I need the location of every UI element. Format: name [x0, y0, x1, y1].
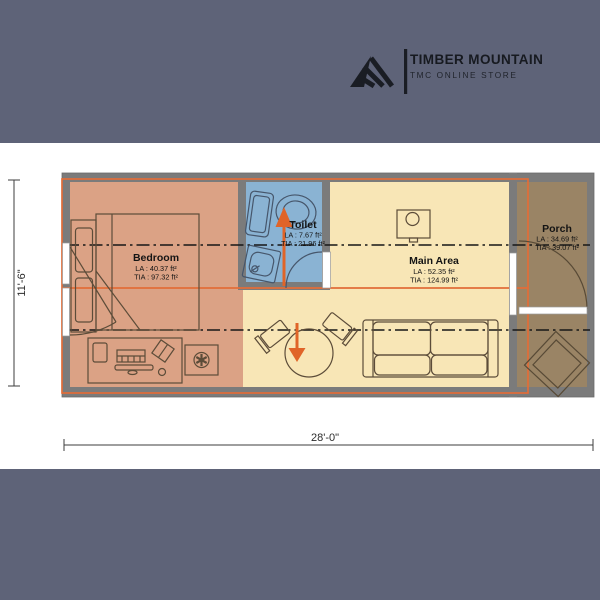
main-area-label: Main Area: [409, 255, 459, 267]
porch-label: Porch: [542, 223, 572, 235]
window-left-upper: [63, 243, 70, 284]
floorplan: Bedroom LA : 40.37 ft² TIA : 97.32 ft² T…: [0, 143, 600, 469]
brand-subtitle: TMC ONLINE STORE: [410, 70, 518, 80]
dimension-width: 28'-0": [64, 432, 593, 451]
porch-tia: TIA : 39.07 ft²: [535, 243, 579, 252]
mountain-icon: [340, 42, 410, 97]
brand-title: TIMBER MOUNTAIN: [410, 52, 543, 67]
toilet-tia: TIA : 21.96 ft²: [281, 239, 325, 248]
dimension-height-label: 11'-6": [16, 269, 28, 296]
porch-door-leaf: [519, 307, 587, 314]
brand-logo: TIMBER MOUNTAIN TMC ONLINE STORE: [340, 42, 570, 97]
toilet-label: Toilet: [289, 219, 317, 231]
bedroom-tia: TIA : 97.32 ft²: [134, 273, 178, 282]
dimension-height: 11'-6": [8, 180, 28, 386]
porch-doorway: [510, 253, 517, 315]
main-area-tia: TIA : 124.99 ft²: [410, 276, 458, 285]
page: TIMBER MOUNTAIN TMC ONLINE STORE: [0, 0, 600, 600]
toilet-door-leaf: [323, 252, 331, 288]
dimension-width-label: 28'-0": [311, 432, 339, 444]
footer-band: [0, 469, 600, 600]
brand-divider-bar: [404, 49, 407, 94]
window-left-lower: [63, 288, 70, 336]
bedroom-label: Bedroom: [133, 252, 179, 264]
